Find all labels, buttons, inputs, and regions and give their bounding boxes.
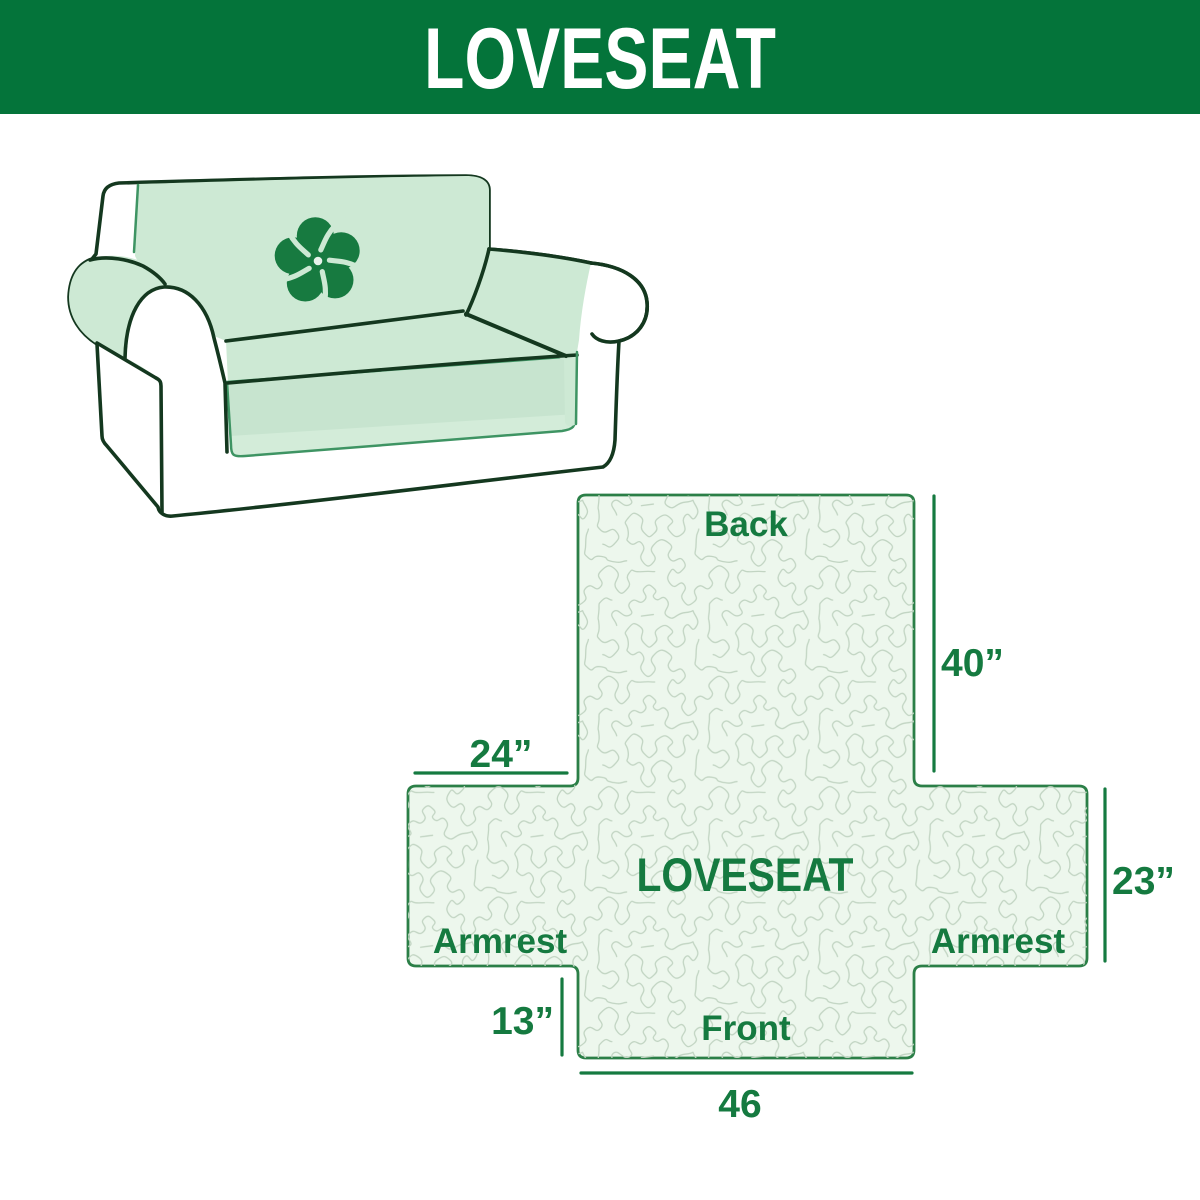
svg-text:Back: Back [704, 505, 788, 544]
svg-text:LOVESEAT: LOVESEAT [637, 848, 854, 901]
svg-text:46: 46 [718, 1083, 761, 1126]
svg-text:13”: 13” [491, 1000, 554, 1043]
svg-text:Armrest: Armrest [931, 922, 1066, 961]
svg-text:Front: Front [701, 1009, 791, 1048]
svg-text:Armrest: Armrest [433, 922, 568, 961]
svg-text:40”: 40” [941, 642, 1004, 685]
svg-text:23”: 23” [1112, 860, 1175, 903]
svg-text:LOVESEAT: LOVESEAT [424, 11, 776, 107]
svg-text:24”: 24” [470, 733, 533, 776]
